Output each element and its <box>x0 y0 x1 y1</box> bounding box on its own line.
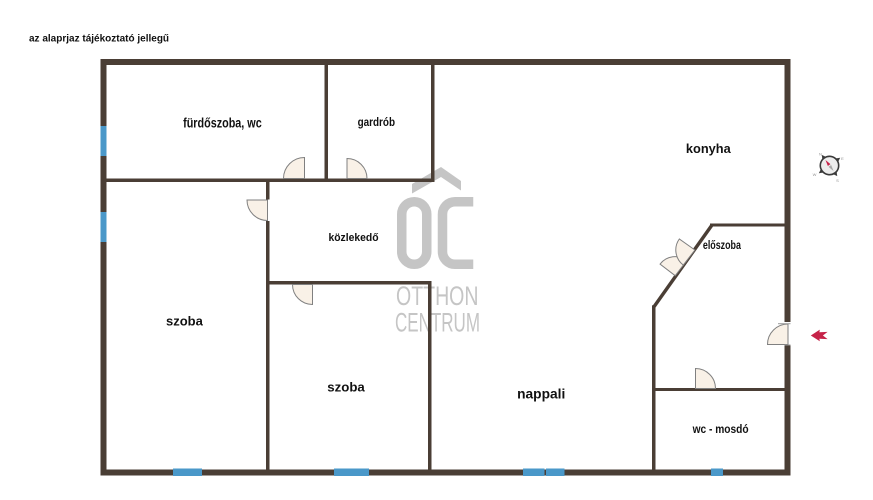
svg-text:szoba: szoba <box>327 380 365 395</box>
svg-text:közlekedő: közlekedő <box>328 232 379 244</box>
svg-text:OTTHON: OTTHON <box>396 281 479 311</box>
svg-text:előszoba: előszoba <box>703 239 741 253</box>
svg-text:konyha: konyha <box>686 141 732 156</box>
svg-text:az alaprjaz tájékoztató jelleg: az alaprjaz tájékoztató jellegű <box>29 34 169 45</box>
svg-text:fürdőszoba, wc: fürdőszoba, wc <box>183 115 262 131</box>
svg-text:wc - mosdó: wc - mosdó <box>692 423 749 436</box>
svg-text:szoba: szoba <box>166 313 204 328</box>
svg-text:N: N <box>819 152 822 157</box>
svg-text:nappali: nappali <box>517 387 565 402</box>
svg-text:S: S <box>836 178 839 183</box>
svg-text:CENTRUM: CENTRUM <box>395 308 480 338</box>
svg-text:E: E <box>841 156 844 161</box>
svg-text:W: W <box>813 172 817 177</box>
svg-text:gardrób: gardrób <box>358 116 396 129</box>
